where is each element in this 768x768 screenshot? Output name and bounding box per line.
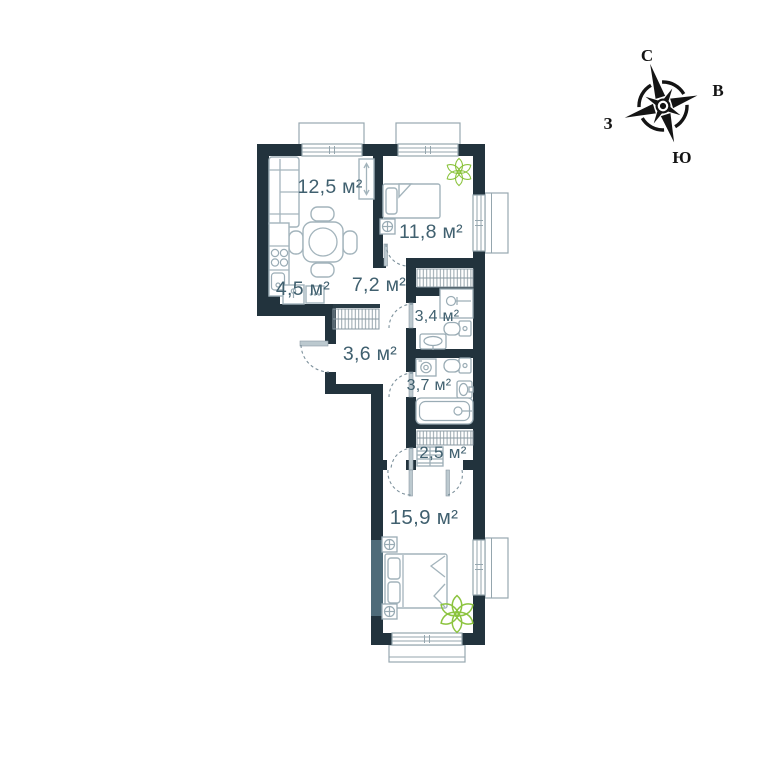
compass-north-label: С — [641, 46, 653, 65]
room-label-hall: 3,6 м² — [343, 343, 397, 365]
bed-double-icon — [385, 554, 447, 608]
compass-south-label: Ю — [672, 148, 691, 167]
room-label-bathroom-large: 3,7 м² — [407, 377, 452, 394]
floor-plan-canvas: 12,5 м² 11,8 м² 4,5 м² 7,2 м² 3,4 м² 3,6… — [0, 0, 768, 768]
window-bedroom-2 — [392, 633, 462, 645]
room-label-hallway: 7,2 м² — [352, 274, 406, 296]
window-balcony-bottom — [473, 540, 485, 595]
entrance-door — [300, 341, 329, 372]
coat-rack-icon — [333, 309, 379, 329]
wardrobe-icon — [417, 269, 473, 287]
nightstand-3-icon — [382, 604, 397, 619]
window-living — [302, 144, 362, 156]
plant-icon — [445, 158, 472, 185]
washbasin-icon — [420, 334, 446, 350]
closet-door — [391, 448, 413, 470]
room-label-closet: 2,5 м² — [419, 443, 467, 462]
bed-single-icon — [383, 184, 440, 218]
compass-icon: С В З Ю — [604, 46, 724, 167]
room-label-bedroom-1: 11,8 м² — [399, 221, 463, 243]
room-label-kitchen: 4,5 м² — [276, 278, 330, 300]
compass-west-label: З — [604, 114, 613, 133]
balcony-bottom — [485, 538, 508, 598]
sink-icon — [457, 381, 473, 398]
compass-east-label: В — [712, 81, 723, 100]
nightstand-icon — [380, 219, 395, 234]
nightstand-2-icon — [382, 537, 397, 552]
room-label-living: 12,5 м² — [297, 176, 363, 198]
window-bedroom-1 — [398, 144, 458, 156]
washing-machine-icon — [416, 359, 436, 376]
window-balcony-top — [473, 195, 485, 251]
bathroom-small-door — [389, 303, 413, 328]
room-label-bedroom-2: 15,9 м² — [390, 506, 459, 529]
floor-plan: 12,5 м² 11,8 м² 4,5 м² 7,2 м² 3,4 м² 3,6… — [0, 0, 768, 768]
balcony-top — [485, 193, 508, 253]
bedroom-1-door — [384, 244, 408, 266]
bedroom-2-french-doors — [388, 470, 463, 496]
sofa-icon — [269, 157, 299, 227]
toilet-2-icon — [444, 358, 471, 373]
room-label-bathroom-small: 3,4 м² — [415, 308, 460, 325]
bathtub-icon — [416, 398, 473, 424]
